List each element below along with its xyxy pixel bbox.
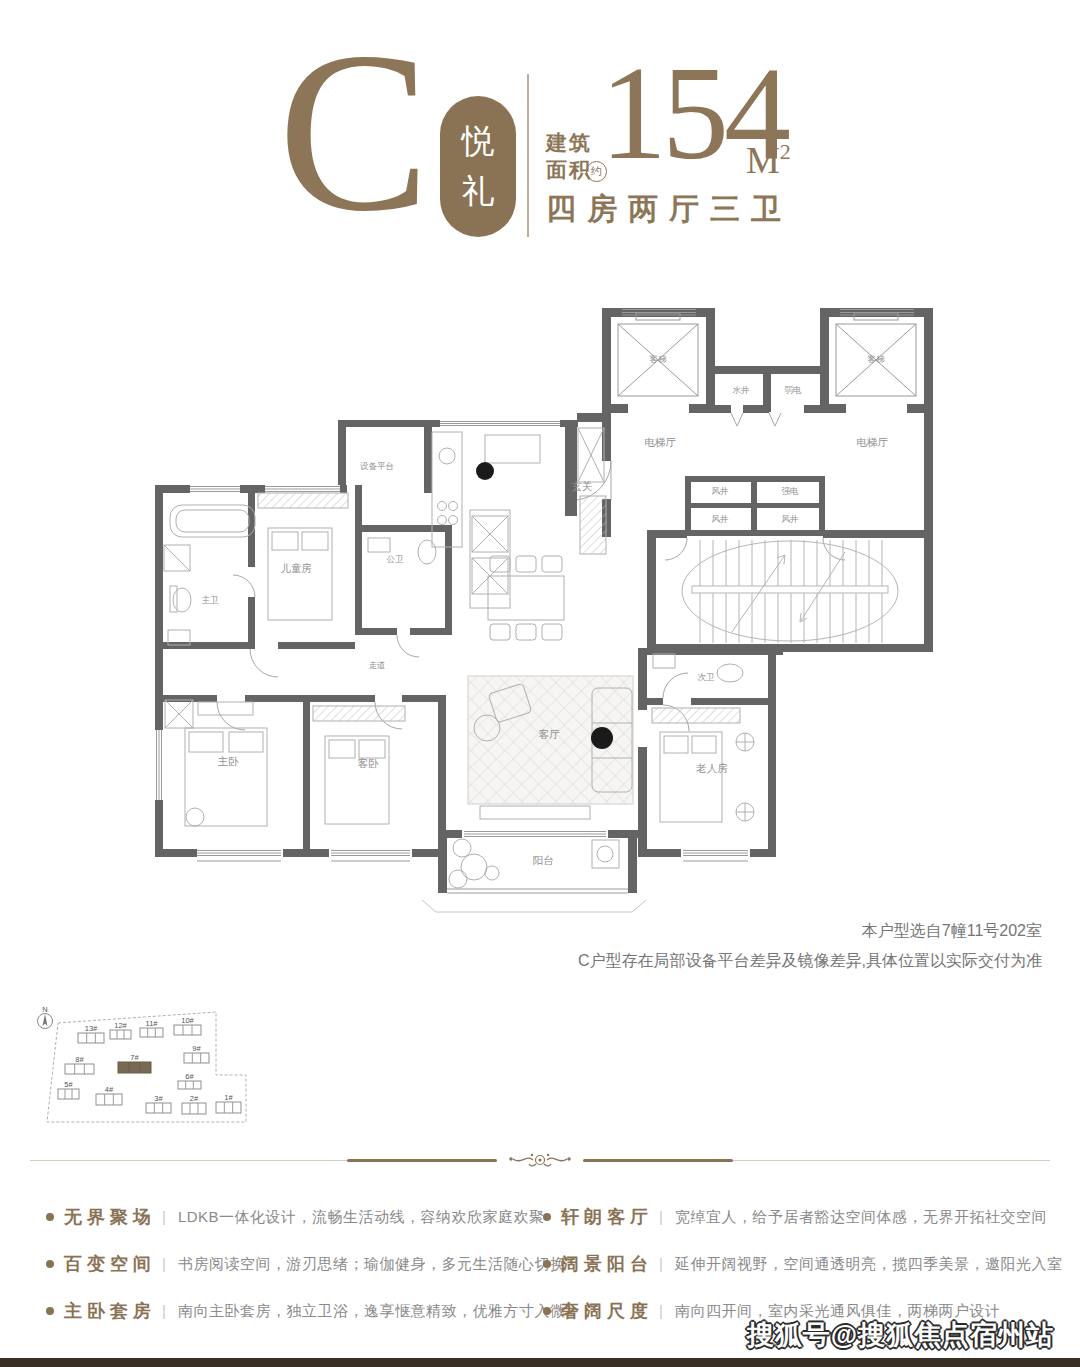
watermark: 搜狐号@搜狐焦点宿州站 bbox=[747, 1317, 1054, 1353]
windows bbox=[155, 310, 914, 894]
area-unit-letter: M bbox=[746, 139, 780, 181]
room-label: 客梯 bbox=[650, 354, 668, 364]
ornamental-divider bbox=[30, 1150, 1050, 1170]
room-label: 客梯 bbox=[868, 354, 886, 364]
room-label: 设备平台 bbox=[360, 461, 394, 471]
feature-desc: LDKB一体化设计，流畅生活动线，容纳欢欣家庭欢聚 bbox=[178, 1206, 545, 1228]
building-label: 1# bbox=[224, 1093, 233, 1102]
divider-line-right-thick bbox=[583, 1159, 733, 1162]
building-10#: 10# bbox=[174, 1016, 201, 1036]
note-line-1: 本户型选自7幢11号202室 bbox=[578, 916, 1042, 946]
feature-separator: | bbox=[659, 1206, 663, 1228]
room-label: 电梯厅 bbox=[856, 436, 888, 448]
feature-title: 无界聚场 bbox=[64, 1206, 156, 1228]
header-divider-line bbox=[527, 74, 529, 237]
room-label: 弱电 bbox=[785, 385, 803, 395]
building-11#: 11# bbox=[140, 1019, 163, 1038]
compass-icon: N bbox=[38, 1006, 53, 1029]
room-label: 客厅 bbox=[539, 728, 561, 740]
room-label: 风井 bbox=[712, 514, 730, 524]
building-4#: 4# bbox=[96, 1085, 122, 1106]
room-label: 强电 bbox=[782, 486, 800, 496]
room-label: 主卧 bbox=[218, 755, 240, 767]
feature-item: 轩朗客厅 | 宽绰宜人，给予居者豁达空间体感，无界开拓社交空间 bbox=[543, 1206, 1046, 1228]
feature-item: 百变空间 | 书房阅读空间，游刃思绪；瑜伽健身，多元生活随心切换 bbox=[46, 1253, 543, 1275]
flourish-icon bbox=[503, 1150, 577, 1170]
divider-line-left-thick bbox=[347, 1159, 497, 1162]
feature-separator: | bbox=[659, 1300, 663, 1322]
feature-separator: | bbox=[162, 1206, 166, 1228]
feature-separator: | bbox=[162, 1300, 166, 1322]
room-label: 儿童房 bbox=[280, 562, 312, 574]
badge-char-2: 礼 bbox=[462, 169, 495, 214]
building-label: 9# bbox=[192, 1044, 201, 1053]
bullet-dot-icon bbox=[543, 1213, 551, 1221]
building-label: 7# bbox=[130, 1053, 139, 1062]
area-label: 建筑 面积 bbox=[546, 130, 592, 185]
feature-item: 无界聚场 | LDKB一体化设计，流畅生活动线，容纳欢欣家庭欢聚 bbox=[46, 1206, 543, 1228]
bullet-dot-icon bbox=[46, 1307, 54, 1315]
bullet-dot-icon bbox=[46, 1260, 54, 1268]
building-label: 10# bbox=[181, 1016, 194, 1025]
room-label: 老人房 bbox=[695, 762, 728, 774]
building-13#: 13# bbox=[78, 1024, 104, 1044]
badge-char-1: 悦 bbox=[462, 119, 495, 164]
site-buildings: 13#12#11#10#9#8#7#6#5#4#3#2#1# bbox=[58, 1016, 241, 1115]
building-label: 5# bbox=[64, 1080, 73, 1089]
feature-column-left: 无界聚场 | LDKB一体化设计，流畅生活动线，容纳欢欣家庭欢聚 百变空间 | … bbox=[46, 1206, 543, 1347]
room-label: 水井 bbox=[733, 385, 751, 395]
building-label: 6# bbox=[185, 1072, 194, 1081]
feature-desc: 南向主卧套房，独立卫浴，逸享惬意精致，优雅方寸入微 bbox=[178, 1300, 566, 1322]
feature-separator: | bbox=[162, 1253, 166, 1275]
building-9#: 9# bbox=[184, 1044, 209, 1064]
building-label: 8# bbox=[75, 1055, 84, 1064]
feature-separator: | bbox=[659, 1253, 663, 1275]
site-map: N 13#12#11#10#9#8#7#6#5#4#3#2#1# bbox=[33, 1006, 263, 1142]
building-1#: 1# bbox=[216, 1093, 241, 1114]
feature-item: 阔景阳台 | 延伸开阔视野，空间通透明亮，揽四季美景，邀阳光入室 bbox=[543, 1253, 1046, 1275]
building-label: 13# bbox=[85, 1024, 98, 1033]
building-label: 2# bbox=[190, 1094, 199, 1103]
building-label: 3# bbox=[154, 1094, 163, 1103]
unit-type-letter: C bbox=[278, 18, 430, 246]
building-label: 11# bbox=[146, 1019, 159, 1028]
header: C 悦 礼 建筑 面积 约 154 M2 四房两厅三卫 bbox=[0, 0, 1080, 270]
bottom-bar bbox=[0, 1358, 1080, 1367]
note-line-2: C户型存在局部设备平台差异及镜像差异,具体位置以实际交付为准 bbox=[578, 946, 1042, 976]
room-label: 玄关 bbox=[572, 480, 593, 492]
feature-title: 轩朗客厅 bbox=[561, 1206, 653, 1228]
building-2#: 2# bbox=[182, 1094, 206, 1115]
area-unit-sup: 2 bbox=[780, 139, 791, 164]
feature-title: 奢阔尺度 bbox=[561, 1300, 653, 1322]
floor-plan: 客梯客梯水井弱电电梯厅电梯厅风井强电风井风井设备平台玄关主卫儿童房公卫走道主卧客… bbox=[140, 300, 940, 915]
unit-name-badge: 悦 礼 bbox=[440, 96, 516, 237]
feature-desc: 延伸开阔视野，空间通透明亮，揽四季美景，邀阳光入室 bbox=[675, 1253, 1063, 1275]
bullet-dot-icon bbox=[46, 1213, 54, 1221]
building-3#: 3# bbox=[146, 1094, 171, 1114]
room-label: 电梯厅 bbox=[644, 436, 676, 448]
plan-notes: 本户型选自7幢11号202室 C户型存在局部设备平台差异及镜像差异,具体位置以实… bbox=[578, 916, 1042, 976]
divider-line-right-thin bbox=[733, 1160, 1050, 1161]
building-8#: 8# bbox=[65, 1055, 94, 1075]
room-label: 客卧 bbox=[358, 757, 380, 769]
feature-title: 阔景阳台 bbox=[561, 1253, 653, 1275]
feature-desc: 书房阅读空间，游刃思绪；瑜伽健身，多元生活随心切换 bbox=[178, 1253, 566, 1275]
building-5#: 5# bbox=[58, 1080, 79, 1100]
feature-title: 主卧套房 bbox=[64, 1300, 156, 1322]
room-label: 走道 bbox=[369, 660, 386, 670]
building-12#: 12# bbox=[110, 1021, 131, 1040]
walls bbox=[155, 308, 933, 893]
area-label-line1: 建筑 bbox=[546, 130, 592, 157]
area-unit: M2 bbox=[746, 138, 791, 182]
room-label: 公卫 bbox=[387, 554, 405, 564]
feature-title: 百变空间 bbox=[64, 1253, 156, 1275]
room-label: 风井 bbox=[782, 514, 800, 524]
stairwell bbox=[682, 540, 898, 643]
divider-line-left-thin bbox=[30, 1160, 347, 1161]
site-map-svg: N 13#12#11#10#9#8#7#6#5#4#3#2#1# bbox=[33, 1006, 263, 1138]
room-label: 阳台 bbox=[533, 854, 554, 866]
feature-item: 主卧套房 | 南向主卧套房，独立卫浴，逸享惬意精致，优雅方寸入微 bbox=[46, 1300, 543, 1322]
building-6#: 6# bbox=[178, 1072, 201, 1090]
building-label: 4# bbox=[105, 1085, 114, 1094]
feature-desc: 宽绰宜人，给予居者豁达空间体感，无界开拓社交空间 bbox=[675, 1206, 1047, 1228]
building-7#: 7# bbox=[118, 1053, 151, 1074]
room-layout-text: 四房两厅三卫 bbox=[546, 189, 792, 230]
compass-n-label: N bbox=[42, 1006, 47, 1014]
bullet-dot-icon bbox=[543, 1307, 551, 1315]
room-label: 主卫 bbox=[202, 595, 220, 605]
floor-plan-svg: 客梯客梯水井弱电电梯厅电梯厅风井强电风井风井设备平台玄关主卫儿童房公卫走道主卧客… bbox=[140, 300, 940, 915]
room-label: 风井 bbox=[712, 486, 730, 496]
building-label: 12# bbox=[114, 1021, 127, 1030]
poster-page: C 悦 礼 建筑 面积 约 154 M2 四房两厅三卫 bbox=[0, 0, 1080, 1367]
bullet-dot-icon bbox=[543, 1260, 551, 1268]
room-label: 次卫 bbox=[698, 672, 716, 682]
